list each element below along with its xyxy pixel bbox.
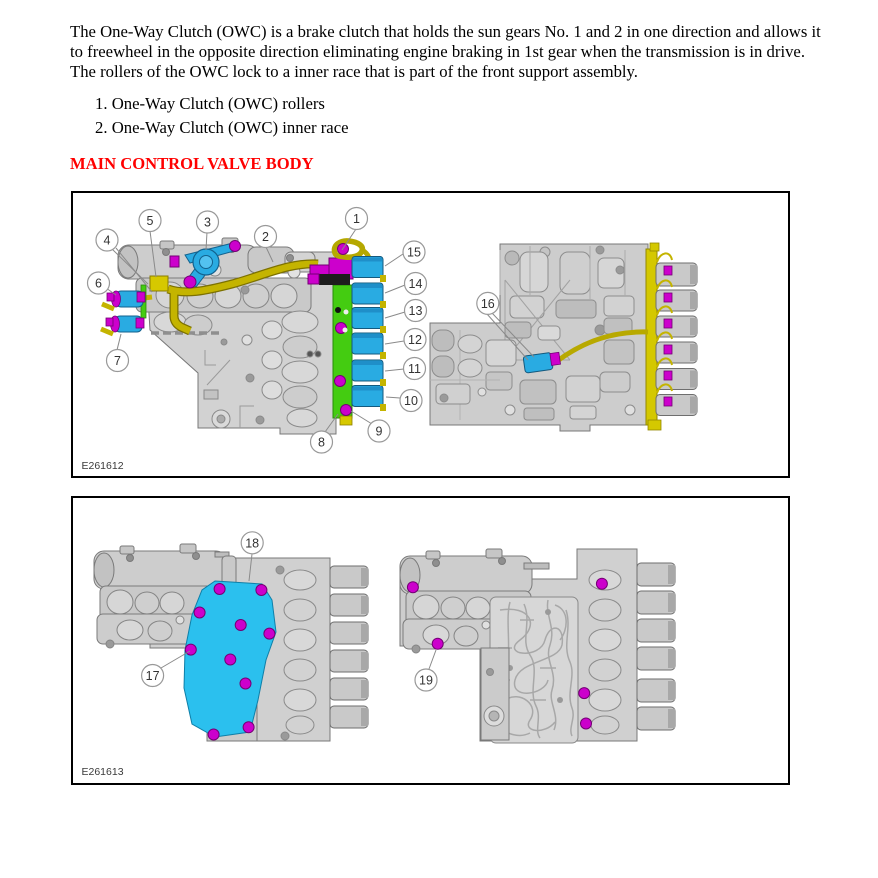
svg-text:2: 2: [262, 230, 269, 244]
svg-text:19: 19: [419, 674, 433, 688]
svg-text:7: 7: [114, 354, 121, 368]
svg-text:18: 18: [245, 536, 259, 550]
svg-text:1: 1: [353, 212, 360, 226]
svg-text:4: 4: [104, 234, 111, 248]
svg-text:17: 17: [146, 669, 160, 683]
svg-text:13: 13: [409, 304, 423, 318]
svg-text:5: 5: [147, 214, 154, 228]
svg-text:3: 3: [204, 216, 211, 230]
svg-text:15: 15: [407, 246, 421, 260]
svg-text:10: 10: [404, 394, 418, 408]
svg-text:14: 14: [409, 277, 423, 291]
svg-text:6: 6: [95, 277, 102, 291]
svg-text:12: 12: [408, 333, 422, 347]
svg-text:9: 9: [376, 425, 383, 439]
svg-text:E261612: E261612: [82, 460, 124, 472]
svg-text:E261613: E261613: [82, 766, 124, 778]
svg-text:11: 11: [408, 362, 421, 376]
svg-text:16: 16: [481, 297, 495, 311]
svg-text:8: 8: [318, 436, 325, 450]
